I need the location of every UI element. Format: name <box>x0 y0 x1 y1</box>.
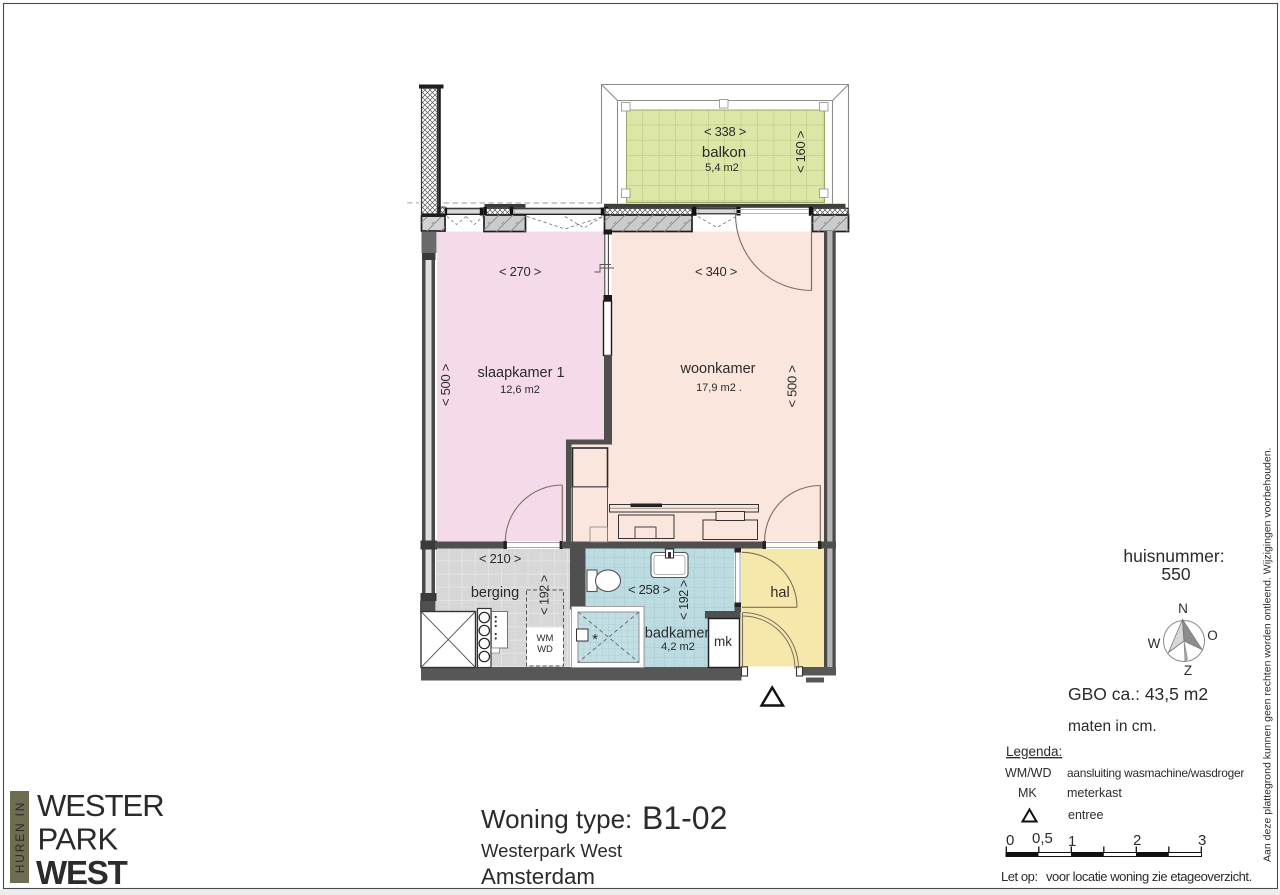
svg-text:Z: Z <box>1184 663 1192 678</box>
svg-text:GBO ca.: 43,5 m2: GBO ca.: 43,5 m2 <box>1068 684 1208 704</box>
svg-text:1: 1 <box>1068 833 1076 850</box>
svg-text:entree: entree <box>1068 808 1103 822</box>
svg-text:550: 550 <box>1161 564 1190 584</box>
svg-text:12,6 m2: 12,6 m2 <box>500 384 540 396</box>
svg-text:Amsterdam: Amsterdam <box>481 864 595 889</box>
svg-text:aansluiting wasmachine/wasdrog: aansluiting wasmachine/wasdroger <box>1067 766 1244 780</box>
svg-text:< 500 >: < 500 > <box>438 364 453 406</box>
svg-text:hal: hal <box>770 585 789 601</box>
svg-text:woonkamer: woonkamer <box>680 361 756 377</box>
svg-text:N: N <box>1178 601 1188 616</box>
svg-text:WM/WD: WM/WD <box>1005 766 1052 780</box>
svg-text:< 340 >: < 340 > <box>695 264 737 279</box>
svg-text:WEST: WEST <box>36 854 128 891</box>
svg-text:huisnummer:: huisnummer: <box>1123 546 1224 566</box>
svg-text:slaapkamer 1: slaapkamer 1 <box>477 365 564 381</box>
svg-text:Let op:: Let op: <box>1001 869 1038 884</box>
svg-text:*: * <box>592 631 598 648</box>
svg-text:B1-02: B1-02 <box>642 800 727 836</box>
svg-text:4,2 m2: 4,2 m2 <box>661 641 695 653</box>
svg-text:< 160 >: < 160 > <box>793 131 808 173</box>
svg-text:0,5: 0,5 <box>1032 830 1053 847</box>
svg-text:5,4 m2: 5,4 m2 <box>705 162 739 174</box>
svg-text:Legenda:: Legenda: <box>1006 744 1062 759</box>
svg-text:mk: mk <box>714 634 732 649</box>
svg-text:HUREN IN: HUREN IN <box>13 801 27 873</box>
svg-text:badkamer: badkamer <box>645 626 710 642</box>
svg-text:< 270 >: < 270 > <box>499 264 541 279</box>
svg-text:< 258 >: < 258 > <box>628 582 670 597</box>
svg-text:WM: WM <box>537 633 554 644</box>
svg-text:17,9 m2 .: 17,9 m2 . <box>696 382 742 394</box>
svg-text:< 338 >: < 338 > <box>704 124 746 139</box>
svg-text:maten in cm.: maten in cm. <box>1068 718 1157 735</box>
svg-text:< 192 >: < 192 > <box>538 575 552 615</box>
svg-text:Woning type:: Woning type: <box>481 804 632 834</box>
svg-text:< 500 >: < 500 > <box>785 366 800 408</box>
svg-text:0: 0 <box>1006 832 1014 849</box>
svg-text:berging: berging <box>471 585 519 601</box>
svg-text:Aan deze plattegrond kunnen ge: Aan deze plattegrond kunnen geen rechten… <box>1262 448 1274 862</box>
svg-text:< 210 >: < 210 > <box>479 551 521 566</box>
svg-text:W: W <box>1148 636 1161 651</box>
svg-text:PARK: PARK <box>38 822 119 857</box>
svg-text:meterkast: meterkast <box>1067 786 1122 800</box>
svg-text:O: O <box>1207 628 1218 643</box>
svg-text:balkon: balkon <box>702 144 746 161</box>
svg-text:3: 3 <box>1198 832 1206 849</box>
svg-text:< 192 >: < 192 > <box>677 580 691 620</box>
svg-text:voor locatie woning zie etageo: voor locatie woning zie etageoverzicht. <box>1046 869 1252 884</box>
svg-text:WD: WD <box>537 644 553 655</box>
svg-text:MK: MK <box>1018 786 1037 800</box>
svg-text:WESTER: WESTER <box>37 788 164 823</box>
svg-text:2: 2 <box>1133 832 1141 849</box>
svg-text:Westerpark West: Westerpark West <box>481 840 622 861</box>
